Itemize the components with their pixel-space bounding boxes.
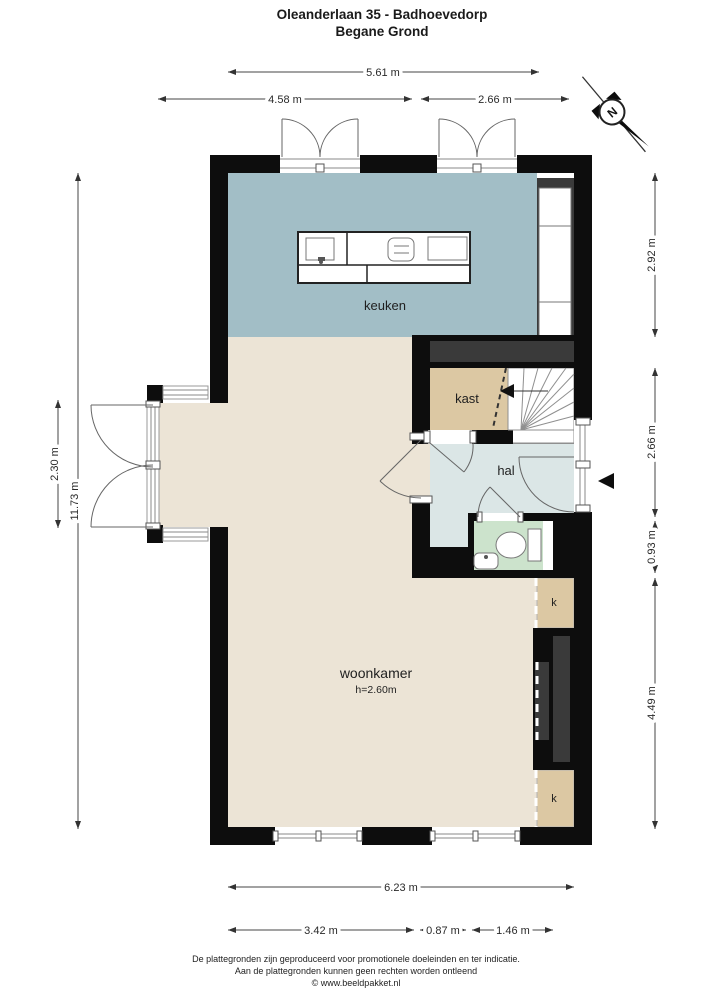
dimensions-top: 5.61 m 4.58 m 2.66 m xyxy=(158,67,569,106)
dim-bottom-1: 3.42 m xyxy=(304,925,338,937)
french-doors-top-right xyxy=(437,119,517,173)
woonkamer-label: woonkamer xyxy=(339,665,413,681)
kast-label: kast xyxy=(455,391,479,406)
room-hal-floor xyxy=(430,444,574,513)
footer-line1: De plattegronden zijn geproduceerd voor … xyxy=(192,954,520,964)
wall-cabinets xyxy=(537,178,574,338)
dim-top-left: 4.58 m xyxy=(268,94,302,106)
dim-left-total: 11.73 m xyxy=(69,482,81,521)
dim-bottom-2: 0.87 m xyxy=(426,925,460,937)
sink-icon xyxy=(306,238,334,264)
closet-k2-label: k xyxy=(551,793,557,805)
ceiling-height-label: h=2.60m xyxy=(355,684,396,696)
footer-disclaimer: De plattegronden zijn geproduceerd voor … xyxy=(192,954,520,988)
dim-bottom-3: 1.46 m xyxy=(496,925,530,937)
kitchen-appliance xyxy=(428,237,467,260)
dimensions-left: 11.73 m 2.30 m xyxy=(49,173,81,829)
dim-right-4: 4.49 m xyxy=(646,686,658,720)
bay-floor xyxy=(159,403,228,527)
interior-wall-panel xyxy=(430,341,574,362)
bay-french-doors xyxy=(91,405,153,527)
title-line1: Oleanderlaan 35 - Badhoevedorp xyxy=(277,7,488,22)
dim-top-total: 5.61 m xyxy=(366,67,400,79)
footer-line2: Aan de plattegronden kunnen geen rechten… xyxy=(235,966,477,976)
window-bottom-left xyxy=(273,827,362,845)
dimensions-bottom: 6.23 m 3.42 m 0.87 m 1.46 m xyxy=(228,882,574,937)
title-line2: Begane Grond xyxy=(335,24,428,39)
french-doors-top-left xyxy=(280,119,360,173)
dim-right-3: 0.93 m xyxy=(646,530,658,564)
hal-label: hal xyxy=(497,463,514,478)
kitchen-island xyxy=(298,232,470,283)
toilet-icon xyxy=(496,529,541,561)
footer-line3: © www.beeldpakket.nl xyxy=(312,978,401,988)
dim-right-2: 2.66 m xyxy=(646,425,658,459)
dimensions-right: 2.92 m 2.66 m 0.93 m 4.49 m xyxy=(646,173,658,829)
compass-north-icon: N xyxy=(571,67,657,161)
dim-right-1: 2.92 m xyxy=(646,238,658,272)
stairs-area xyxy=(508,368,574,444)
washbasin-icon xyxy=(474,553,498,569)
page-title: Oleanderlaan 35 - Badhoevedorp Begane Gr… xyxy=(277,7,488,39)
keuken-label: keuken xyxy=(364,298,406,313)
closet-k1-label: k xyxy=(551,597,557,609)
floor-plan-canvas: Oleanderlaan 35 - Badhoevedorp Begane Gr… xyxy=(0,0,707,1000)
toilet-duct xyxy=(543,521,553,570)
cooktop-icon xyxy=(388,238,414,261)
dim-top-right: 2.66 m xyxy=(478,94,512,106)
window-bottom-right xyxy=(430,827,520,845)
dim-bottom-total: 6.23 m xyxy=(384,882,418,894)
dim-left-bay: 2.30 m xyxy=(49,447,61,481)
entrance-arrow-icon xyxy=(598,473,614,489)
